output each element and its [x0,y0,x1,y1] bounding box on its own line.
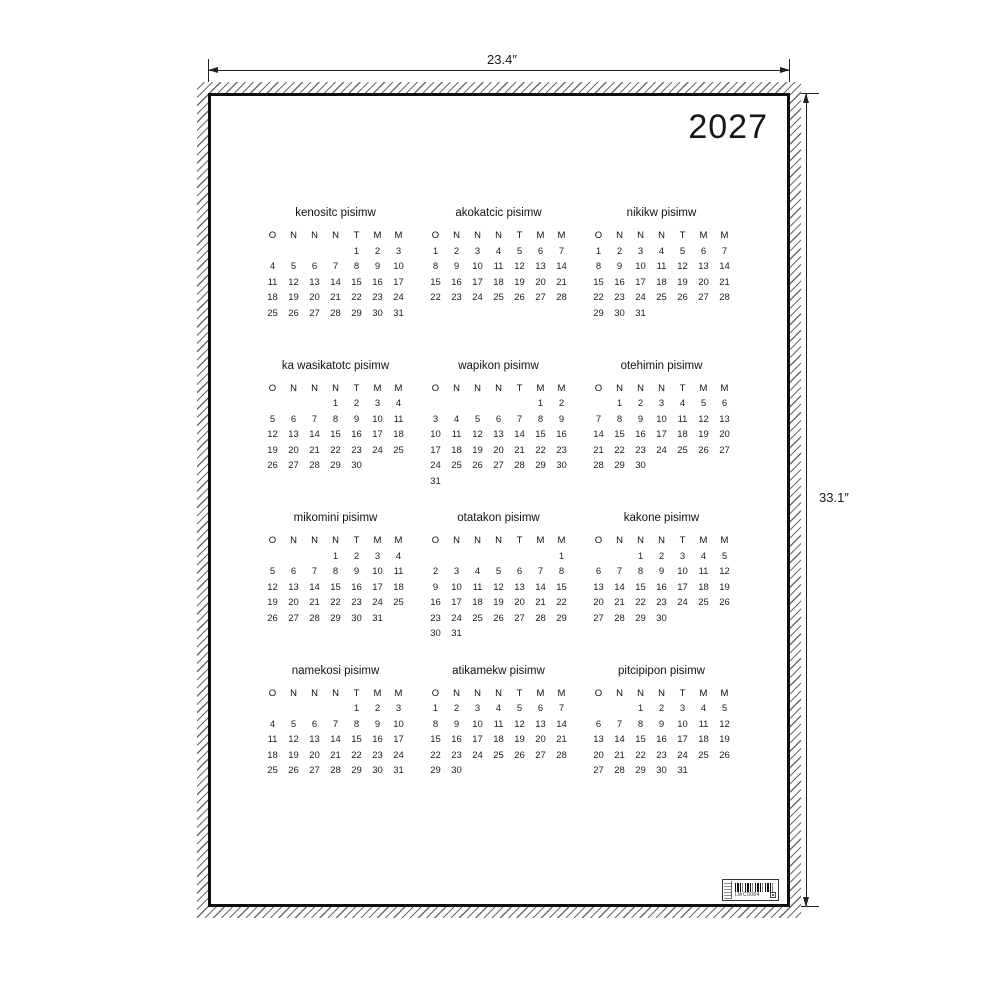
day-cell: 22 [609,443,630,459]
day-cell: 7 [530,564,551,580]
day-cell: 14 [509,427,530,443]
week-row: 13141516171819 [588,580,735,596]
day-cell: 28 [304,611,325,627]
weekday-header-cell: M [551,381,572,397]
day-cell: 23 [446,748,467,764]
day-cell: 26 [262,458,283,474]
day-cell [304,396,325,412]
weekday-header-cell: N [467,533,488,549]
weekday-header-cell: O [262,533,283,549]
height-dimension-label: 33.1″ [816,490,852,505]
day-cell: 16 [651,580,672,596]
weekday-header-cell: N [283,686,304,702]
day-cell: 4 [693,701,714,717]
day-cell [509,626,530,642]
day-cell: 20 [693,275,714,291]
day-cell: 16 [651,732,672,748]
day-cell: 22 [346,748,367,764]
day-cell: 10 [367,412,388,428]
day-cell: 4 [672,396,693,412]
day-cell: 23 [446,290,467,306]
month-table: ONNNTMM123456789101112131415161718192021… [588,686,735,779]
day-cell [488,763,509,779]
day-cell: 25 [467,611,488,627]
day-cell: 9 [367,259,388,275]
day-cell: 22 [425,290,446,306]
day-cell: 6 [304,259,325,275]
week-row: 22232425262728 [588,290,735,306]
week-row: 262728293031 [262,611,409,627]
day-cell: 26 [693,443,714,459]
day-cell: 31 [672,763,693,779]
day-cell: 29 [325,611,346,627]
day-cell: 26 [467,458,488,474]
day-cell [262,701,283,717]
day-cell: 18 [446,443,467,459]
day-cell [530,549,551,565]
day-cell [467,626,488,642]
day-cell: 19 [283,748,304,764]
weekday-header-cell: M [367,381,388,397]
day-cell: 8 [609,412,630,428]
day-cell: 9 [446,717,467,733]
day-cell: 8 [325,564,346,580]
day-cell: 21 [509,443,530,459]
day-cell: 29 [551,611,572,627]
weekday-header-cell: M [714,228,735,244]
day-cell: 4 [262,259,283,275]
day-cell: 7 [325,259,346,275]
day-cell: 12 [262,580,283,596]
day-cell [283,701,304,717]
day-cell: 27 [693,290,714,306]
weekday-header-cell: T [509,686,530,702]
day-cell: 19 [488,595,509,611]
day-cell: 7 [509,412,530,428]
day-cell: 24 [388,748,409,764]
weekday-header-cell: M [530,381,551,397]
day-cell: 11 [672,412,693,428]
day-cell: 2 [367,244,388,260]
day-cell: 29 [346,763,367,779]
weekday-header-cell: M [367,228,388,244]
day-cell: 9 [551,412,572,428]
day-cell [488,626,509,642]
day-cell: 24 [467,748,488,764]
day-cell: 13 [509,580,530,596]
day-cell: 24 [672,595,693,611]
day-cell: 12 [488,580,509,596]
day-cell: 18 [672,427,693,443]
weekday-header-cell: N [446,228,467,244]
month-block: akokatcic pisimwONNNTMM12345678910111213… [425,205,572,358]
day-cell: 7 [551,244,572,260]
weekday-header-cell: M [530,533,551,549]
day-cell: 21 [609,748,630,764]
day-cell: 7 [588,412,609,428]
day-cell: 22 [630,748,651,764]
week-row: 19202122232425 [262,595,409,611]
day-cell: 7 [551,701,572,717]
day-cell: 14 [714,259,735,275]
day-cell: 14 [304,427,325,443]
day-cell: 12 [714,564,735,580]
width-arrow-left-icon [208,67,218,73]
day-cell: 2 [446,244,467,260]
day-cell: 8 [530,412,551,428]
day-cell [425,396,446,412]
day-cell: 20 [588,595,609,611]
day-cell: 16 [346,427,367,443]
day-cell: 14 [325,732,346,748]
week-row: 3456789 [425,412,572,428]
week-row: 15161718192021 [425,275,572,291]
day-cell: 16 [630,427,651,443]
day-cell: 14 [551,717,572,733]
day-cell: 18 [488,275,509,291]
day-cell: 31 [388,306,409,322]
day-cell: 28 [551,290,572,306]
weekday-header-cell: N [609,533,630,549]
day-cell: 29 [609,458,630,474]
week-row: 45678910 [262,717,409,733]
day-cell: 25 [388,443,409,459]
day-cell: 23 [651,748,672,764]
day-cell: 23 [651,595,672,611]
weekday-header-cell: N [651,381,672,397]
day-cell [509,474,530,490]
day-cell: 5 [672,244,693,260]
month-block: wapikon pisimwONNNTMM1234567891011121314… [425,358,572,511]
day-cell: 22 [630,595,651,611]
day-cell: 10 [651,412,672,428]
height-arrow-up-icon [803,93,809,103]
day-cell: 7 [609,564,630,580]
day-cell: 13 [588,580,609,596]
day-cell: 22 [325,595,346,611]
month-table: ONNNTMM123456789101112131415161718192021… [425,381,572,490]
day-cell: 21 [714,275,735,291]
weekday-header-cell: M [530,228,551,244]
day-cell [509,763,530,779]
month-table: ONNNTMM123456789101112131415161718192021… [588,533,735,626]
day-cell [488,474,509,490]
day-cell: 19 [714,580,735,596]
week-row: 16171819202122 [425,595,572,611]
day-cell: 24 [651,443,672,459]
month-title: ka wasikatotc pisimw [262,358,409,374]
barcode-icon [735,883,775,892]
day-cell: 17 [630,275,651,291]
day-cell: 20 [530,275,551,291]
weekday-header-cell: N [488,381,509,397]
day-cell: 30 [609,306,630,322]
day-cell [262,244,283,260]
day-cell: 5 [509,244,530,260]
day-cell: 28 [325,306,346,322]
day-cell: 3 [425,412,446,428]
weekday-header-cell: T [346,381,367,397]
day-cell [283,396,304,412]
day-cell: 1 [325,549,346,565]
day-cell [446,474,467,490]
day-cell: 11 [388,564,409,580]
weekday-header-cell: N [488,533,509,549]
day-cell: 20 [283,443,304,459]
day-cell: 21 [325,290,346,306]
weekday-header-cell: N [283,381,304,397]
day-cell: 28 [530,611,551,627]
day-cell: 20 [304,748,325,764]
day-cell: 27 [283,611,304,627]
month-title: nikikw pisimw [588,205,735,221]
day-cell: 8 [325,412,346,428]
month-block: mikomini pisimwONNNTMM123456789101112131… [262,510,409,663]
week-row: 31 [425,474,572,490]
weekday-header-cell: T [509,533,530,549]
day-cell: 5 [283,259,304,275]
day-cell: 27 [588,611,609,627]
day-cell: 16 [551,427,572,443]
day-cell: 17 [388,275,409,291]
day-cell: 9 [651,564,672,580]
day-cell: 22 [346,290,367,306]
day-cell: 17 [467,732,488,748]
day-cell: 19 [262,443,283,459]
month-title: atikamekw pisimw [425,663,572,679]
day-cell: 1 [609,396,630,412]
week-row: 1234567 [588,244,735,260]
day-cell: 30 [446,763,467,779]
weekday-header-cell: N [488,686,509,702]
day-cell: 12 [672,259,693,275]
month-block: ka wasikatotc pisimwONNNTMM1234567891011… [262,358,409,511]
day-cell: 25 [693,748,714,764]
weekday-header-cell: M [551,686,572,702]
week-row: 891011121314 [588,259,735,275]
day-cell: 5 [693,396,714,412]
day-cell: 17 [651,427,672,443]
week-row: 27282930 [588,611,735,627]
day-cell: 6 [530,244,551,260]
day-cell: 21 [551,275,572,291]
day-cell: 31 [630,306,651,322]
week-row: 24252627282930 [425,458,572,474]
week-row: 123 [262,244,409,260]
day-cell: 11 [488,717,509,733]
year-title: 2027 [688,109,768,145]
day-cell: 10 [630,259,651,275]
week-row: 6789101112 [588,717,735,733]
day-cell: 30 [346,458,367,474]
day-cell: 10 [467,717,488,733]
day-cell: 26 [509,290,530,306]
height-dimension-line [806,93,807,907]
day-cell: 21 [588,443,609,459]
day-cell: 7 [304,564,325,580]
day-cell: 31 [425,474,446,490]
day-cell: 16 [367,275,388,291]
week-row: 6789101112 [588,564,735,580]
day-cell: 28 [509,458,530,474]
day-cell: 2 [551,396,572,412]
day-cell: 4 [488,701,509,717]
day-cell [304,244,325,260]
day-cell: 14 [609,732,630,748]
day-cell: 24 [672,748,693,764]
weekday-header-cell: M [388,686,409,702]
day-cell: 6 [588,717,609,733]
day-cell: 12 [262,427,283,443]
month-table: ONNNTMM123456789101112131415161718192021… [262,533,409,626]
month-table: ONNNTMM123456789101112131415161718192021… [425,686,572,779]
day-cell [388,611,409,627]
day-cell: 13 [530,259,551,275]
day-cell: 14 [325,275,346,291]
day-cell: 22 [530,443,551,459]
month-title: kenositc pisimw [262,205,409,221]
day-cell [304,549,325,565]
day-cell: 3 [388,244,409,260]
day-cell: 4 [651,244,672,260]
day-cell: 23 [346,595,367,611]
day-cell: 16 [367,732,388,748]
day-cell: 23 [346,443,367,459]
weekday-header-cell: T [672,686,693,702]
month-block: otehimin pisimwONNNTMM123456789101112131… [588,358,735,511]
day-cell: 18 [693,580,714,596]
weekday-header-cell: M [714,381,735,397]
day-cell: 19 [262,595,283,611]
day-cell: 11 [467,580,488,596]
month-title: namekosi pisimw [262,663,409,679]
day-cell: 10 [672,564,693,580]
day-cell: 18 [262,290,283,306]
month-block: kakone pisimwONNNTMM12345678910111213141… [588,510,735,663]
day-cell: 23 [551,443,572,459]
day-cell: 12 [693,412,714,428]
day-cell: 24 [367,443,388,459]
week-row: 282930 [588,458,735,474]
day-cell: 27 [304,763,325,779]
day-cell: 5 [283,717,304,733]
day-cell: 13 [693,259,714,275]
day-cell: 19 [693,427,714,443]
day-cell: 15 [346,275,367,291]
day-cell: 1 [588,244,609,260]
day-cell [304,701,325,717]
day-cell: 25 [488,748,509,764]
month-block: namekosi pisimwONNNTMM123456789101112131… [262,663,409,816]
day-cell: 12 [509,259,530,275]
day-cell: 10 [672,717,693,733]
day-cell: 26 [262,611,283,627]
day-cell [651,306,672,322]
weekday-header-cell: M [530,686,551,702]
day-cell: 14 [551,259,572,275]
day-cell: 24 [630,290,651,306]
day-cell [467,549,488,565]
weekday-header-cell: N [446,686,467,702]
day-cell [467,763,488,779]
day-cell: 25 [488,290,509,306]
day-cell: 4 [693,549,714,565]
day-cell: 28 [609,611,630,627]
day-cell: 17 [425,443,446,459]
weekday-header-cell: N [446,533,467,549]
product-label: LWC0084 [722,879,779,901]
day-cell: 4 [467,564,488,580]
day-cell [488,396,509,412]
day-cell: 2 [346,549,367,565]
week-row: 23242526272829 [425,611,572,627]
day-cell: 5 [714,549,735,565]
week-row: 25262728293031 [262,306,409,322]
day-cell: 1 [425,244,446,260]
day-cell: 30 [346,611,367,627]
weekday-header-cell: N [283,228,304,244]
day-cell: 4 [262,717,283,733]
day-cell [388,458,409,474]
month-title: akokatcic pisimw [425,205,572,221]
week-row: 567891011 [262,412,409,428]
week-row: 12131415161718 [262,427,409,443]
day-cell: 24 [446,611,467,627]
weekday-header-cell: O [425,533,446,549]
day-cell: 12 [283,732,304,748]
day-cell: 23 [609,290,630,306]
month-title: wapikon pisimw [425,358,572,374]
day-cell: 18 [693,732,714,748]
day-cell: 21 [304,443,325,459]
week-row: 1234567 [425,701,572,717]
weekday-header-cell: O [425,686,446,702]
week-row: 25262728293031 [262,763,409,779]
day-cell: 22 [551,595,572,611]
weekday-header-cell: M [551,228,572,244]
day-cell: 3 [467,244,488,260]
day-cell: 22 [325,443,346,459]
day-cell [588,701,609,717]
day-cell: 20 [588,748,609,764]
day-cell [509,396,530,412]
day-cell: 8 [630,717,651,733]
day-cell: 2 [651,549,672,565]
weekday-header-cell: N [467,228,488,244]
day-cell: 18 [388,427,409,443]
weekday-header-cell: O [262,228,283,244]
day-cell: 5 [467,412,488,428]
day-cell [551,763,572,779]
weekday-header-cell: N [651,686,672,702]
day-cell: 28 [609,763,630,779]
week-row: 12345 [588,549,735,565]
weekday-header-cell: N [446,381,467,397]
day-cell: 10 [388,259,409,275]
weekday-header-cell: M [693,228,714,244]
day-cell: 4 [388,549,409,565]
day-cell: 12 [714,717,735,733]
day-cell: 3 [672,549,693,565]
day-cell: 29 [588,306,609,322]
day-cell: 18 [467,595,488,611]
day-cell: 28 [551,748,572,764]
day-cell: 6 [588,564,609,580]
day-cell: 17 [672,732,693,748]
week-row: 15161718192021 [588,275,735,291]
day-cell: 20 [283,595,304,611]
day-cell: 27 [588,763,609,779]
